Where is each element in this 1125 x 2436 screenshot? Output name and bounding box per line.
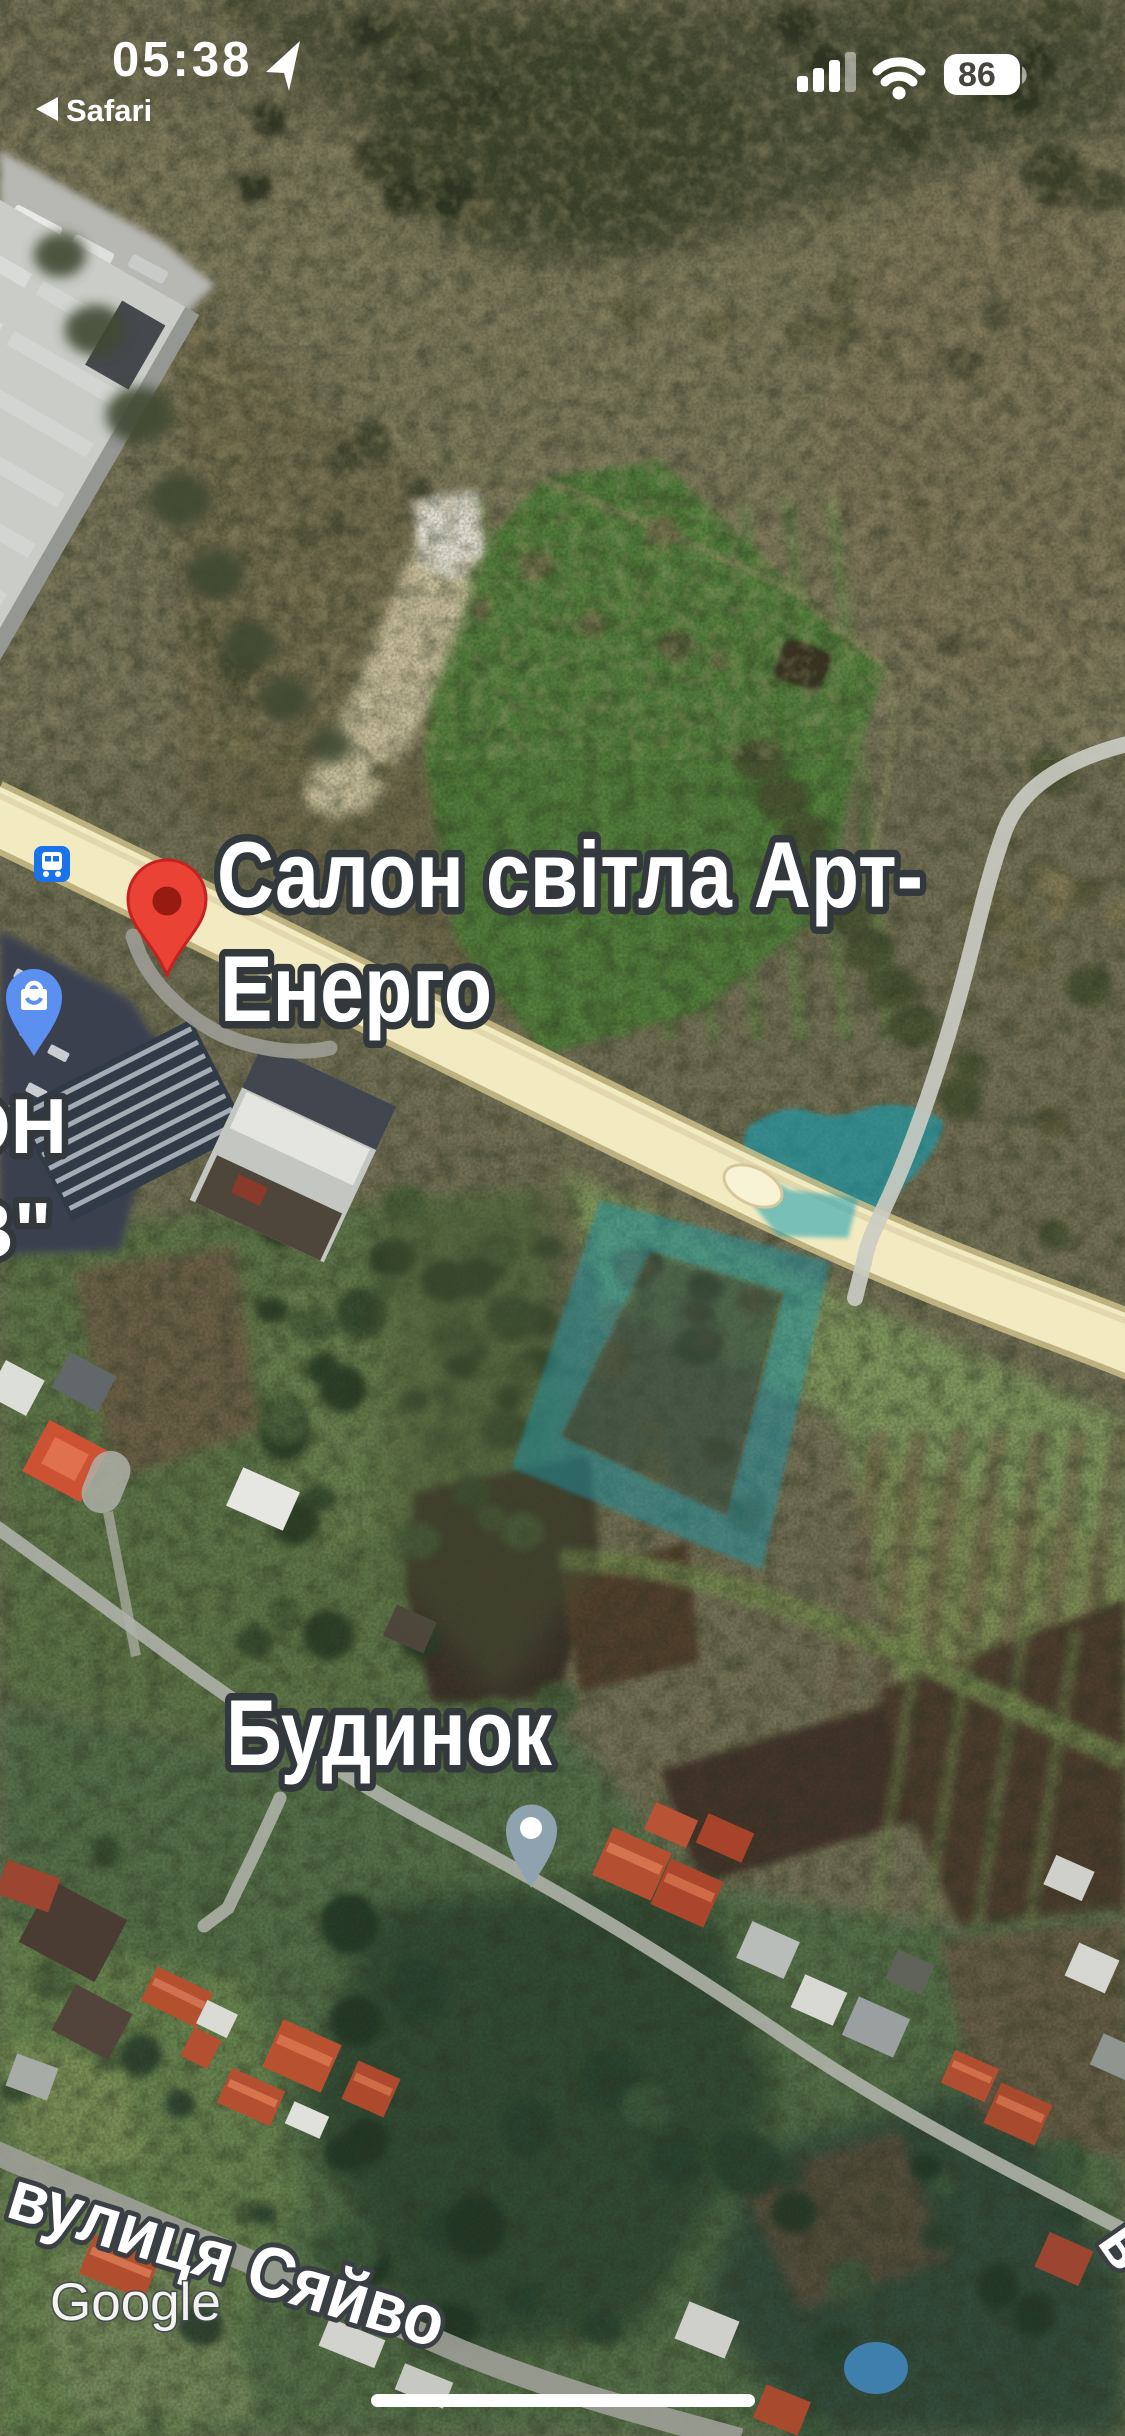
svg-text:05:38: 05:38 — [112, 33, 252, 87]
svg-text:В": В" — [0, 1186, 52, 1275]
svg-text:Енерго: Енерго — [220, 936, 492, 1041]
svg-text:Салон світла Арт-: Салон світла Арт- — [217, 822, 923, 927]
svg-text:Google: Google — [50, 2273, 221, 2332]
svg-text:Будинок: Будинок — [226, 1680, 553, 1785]
svg-text:Safari: Safari — [66, 93, 152, 128]
svg-text:86: 86 — [958, 56, 996, 94]
svg-text:ОН: ОН — [0, 1082, 67, 1170]
